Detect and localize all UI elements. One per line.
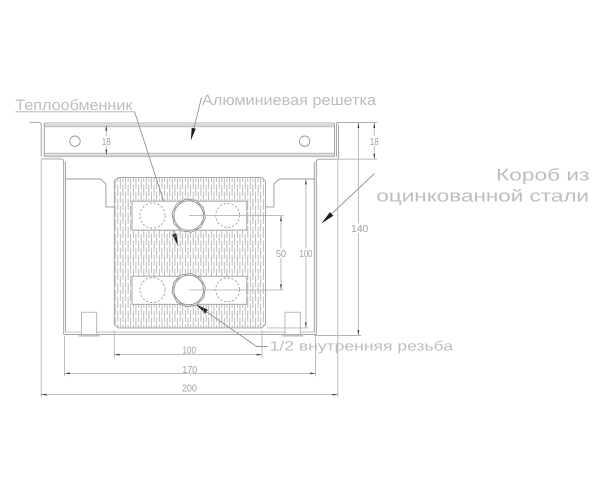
svg-text:170: 170 — [182, 365, 197, 376]
svg-text:200: 200 — [182, 383, 197, 394]
svg-text:1/2 внутренняя резьба: 1/2 внутренняя резьба — [270, 339, 454, 354]
svg-text:оцинкованной стали: оцинкованной стали — [376, 187, 589, 206]
svg-text:100: 100 — [300, 249, 313, 260]
svg-text:100: 100 — [183, 345, 197, 356]
svg-text:140: 140 — [351, 224, 368, 235]
svg-text:18: 18 — [102, 137, 111, 148]
svg-text:18: 18 — [370, 137, 379, 148]
svg-text:Короб из: Короб из — [496, 166, 590, 185]
svg-text:Алюминиевая решетка: Алюминиевая решетка — [202, 92, 377, 109]
svg-text:50: 50 — [276, 249, 286, 260]
